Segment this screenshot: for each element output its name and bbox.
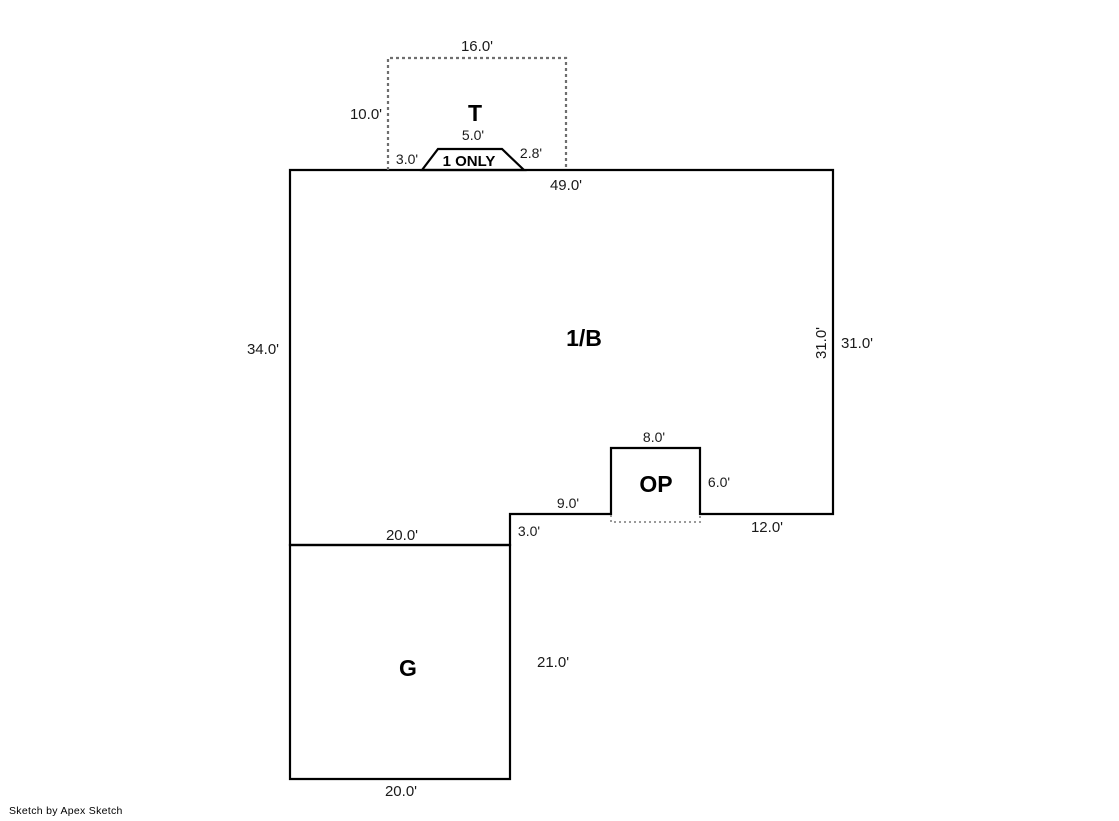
area-label-main: 1/B	[566, 325, 602, 351]
apex-sketch-credit: Sketch by Apex Sketch	[9, 805, 123, 817]
stoop-note-label: 1 ONLY	[443, 153, 496, 170]
open-porch-dotted-edge	[611, 515, 700, 522]
dim-stoop-right: 2.8'	[520, 145, 542, 161]
main-area-outline	[290, 170, 833, 545]
dim-t-height: 10.0'	[350, 106, 382, 123]
floorplan-sketch: 16.0' 10.0' 5.0' 3.0' 2.8' 49.0' 34.0' 3…	[0, 0, 1119, 821]
dim-t-width: 16.0'	[461, 38, 493, 55]
dim-garage-bottom: 20.0'	[385, 783, 417, 800]
area-label-garage: G	[399, 655, 417, 681]
dim-garage-right: 21.0'	[537, 654, 569, 671]
dim-bottom-left-segment: 9.0'	[557, 495, 579, 511]
dim-main-right-inner: 31.0'	[813, 327, 830, 359]
dim-bottom-right-segment: 12.0'	[751, 519, 783, 536]
dim-main-right-outer: 31.0'	[841, 335, 873, 352]
dim-main-top: 49.0'	[550, 177, 582, 194]
dim-bottom-step: 3.0'	[518, 523, 540, 539]
dim-garage-top: 20.0'	[386, 527, 418, 544]
dim-op-width: 8.0'	[643, 429, 665, 445]
sketch-canvas: 16.0' 10.0' 5.0' 3.0' 2.8' 49.0' 34.0' 3…	[0, 0, 1119, 821]
dim-op-height: 6.0'	[708, 474, 730, 490]
area-label-open-porch: OP	[639, 471, 672, 497]
area-label-attic: T	[468, 100, 482, 126]
dim-main-left: 34.0'	[247, 341, 279, 358]
dim-stoop-top: 5.0'	[462, 127, 484, 143]
dim-stoop-left: 3.0'	[396, 151, 418, 167]
